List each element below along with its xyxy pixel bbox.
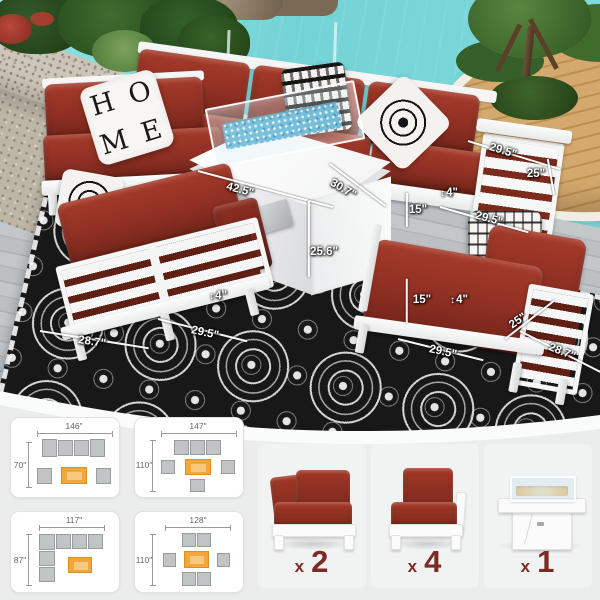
layout-depth-label: 110": [136, 460, 153, 470]
depth-dimension-line: [152, 440, 153, 492]
layout-seat: [163, 553, 176, 567]
layout-seat: [58, 440, 73, 456]
home-pillow-letter: H: [87, 86, 119, 123]
chair-leg: [160, 313, 175, 341]
layout-fire-table: [61, 467, 87, 484]
layout-seat: [39, 551, 55, 566]
depth-dimension-line: [152, 534, 153, 586]
count-number: 4: [424, 544, 442, 579]
piece-count: x4: [371, 544, 479, 580]
depth-dimension-line: [28, 442, 29, 488]
layout-seat: [42, 439, 57, 457]
dimension-label-lchair-cushion: ↕4": [209, 290, 227, 302]
layout-seat: [90, 439, 105, 457]
home-pillow-letter: M: [96, 123, 132, 161]
product-listing-image: H O M E: [0, 0, 600, 600]
layout-width-label: 117": [66, 515, 83, 525]
armless-chair-illustration: [379, 458, 471, 550]
count-multiplier: x: [521, 557, 530, 576]
width-dimension-line: [165, 527, 231, 528]
layout-fire-table: [184, 551, 209, 568]
layout-seat: [182, 533, 196, 547]
dimension-line: [308, 201, 310, 277]
fire-table-glass-guard: [510, 476, 576, 502]
dimension-label-sofa-cushion: ↕4": [440, 187, 458, 199]
layout-seat: [174, 440, 189, 455]
layout-card-2: 147" 110": [134, 417, 244, 498]
piece-count: x2: [258, 544, 366, 580]
layout-seat: [39, 534, 55, 550]
layout-seat: [197, 533, 211, 547]
fire-table-illustration: [492, 458, 584, 550]
width-dimension-line: [161, 433, 237, 434]
layout-seat: [221, 460, 235, 474]
layout-width-label: 146": [65, 421, 82, 431]
home-pillow-letter: E: [138, 113, 166, 148]
layout-seat: [96, 468, 111, 484]
fire-table-door-handle: [537, 522, 544, 526]
layout-seat: [217, 553, 230, 567]
armless-chair-right: [359, 198, 597, 412]
layout-card-4: 128" 110": [134, 511, 244, 593]
layout-seat: [72, 534, 87, 549]
layout-seat: [88, 534, 103, 549]
piece-count: x1: [484, 544, 592, 580]
chair-leg: [244, 288, 259, 316]
layout-depth-label: 110": [136, 555, 153, 565]
dimension-label-rchair-cushion: ↕4": [450, 294, 468, 306]
layout-width-label: 147": [189, 421, 206, 431]
layout-seat: [161, 460, 175, 474]
layout-seat: [39, 567, 55, 582]
piece-armless-chair: x4: [371, 444, 479, 588]
dimension-line: [406, 279, 408, 323]
dimension-label-sofa-back-height: 25": [527, 168, 545, 180]
piece-corner-chair: x2: [258, 444, 366, 588]
count-multiplier: x: [408, 557, 417, 576]
count-number: 2: [311, 544, 329, 579]
home-pillow-letter: O: [125, 75, 155, 111]
layout-depth-label: 70": [14, 460, 26, 470]
layout-fire-table: [185, 459, 211, 475]
updown-arrow-icon: ↕: [209, 291, 214, 302]
layout-seat: [56, 534, 71, 549]
dimension-label-rchair-seat-height: 15": [413, 294, 431, 306]
layout-seat: [37, 468, 52, 484]
corner-chair-illustration: [266, 458, 358, 550]
layout-card-1: 146" 70": [10, 417, 120, 498]
piece-fire-pit-table: x1: [484, 444, 592, 588]
layout-seat: [190, 479, 205, 492]
layout-seat: [74, 440, 89, 456]
layout-card-3: 117" 87": [10, 511, 120, 593]
layout-seat: [190, 440, 205, 455]
layout-depth-label: 87": [14, 555, 26, 565]
width-dimension-line: [37, 433, 113, 434]
count-multiplier: x: [295, 557, 304, 576]
layout-seat: [197, 572, 211, 586]
updown-arrow-icon: ↕: [440, 188, 445, 199]
layout-seat: [206, 440, 221, 455]
depth-dimension-line: [28, 534, 29, 586]
width-dimension-line: [39, 527, 105, 528]
updown-arrow-icon: ↕: [450, 295, 455, 306]
dimension-label-sofa-seat-height: 15": [409, 204, 427, 216]
dimension-label-table-height: 25.6": [310, 246, 338, 258]
layout-fire-table: [68, 557, 92, 573]
layout-seat: [182, 572, 196, 586]
dimension-line: [406, 193, 408, 227]
layout-width-label: 128": [189, 515, 206, 525]
count-number: 1: [537, 544, 555, 579]
